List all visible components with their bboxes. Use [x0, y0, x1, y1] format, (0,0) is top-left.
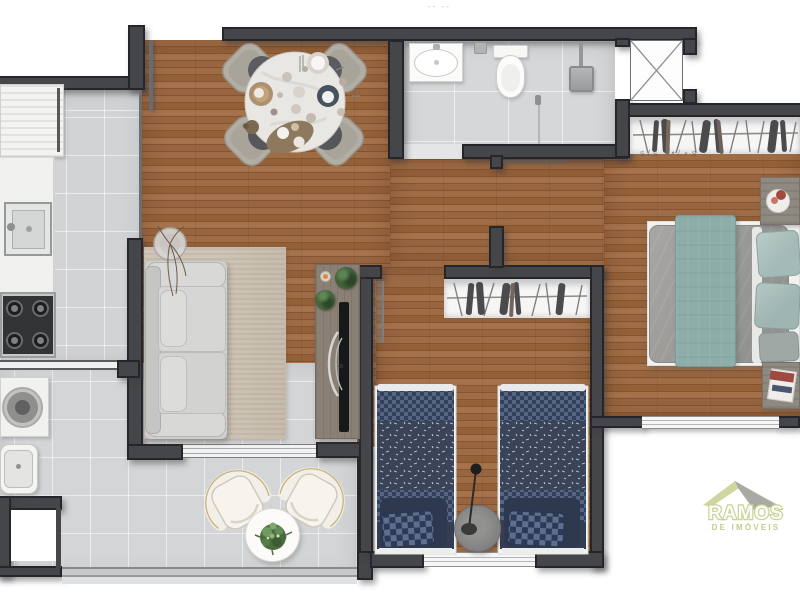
- svg-text:RAMOS: RAMOS: [708, 503, 784, 524]
- svg-text:DE IMÓVEIS: DE IMÓVEIS: [712, 523, 781, 532]
